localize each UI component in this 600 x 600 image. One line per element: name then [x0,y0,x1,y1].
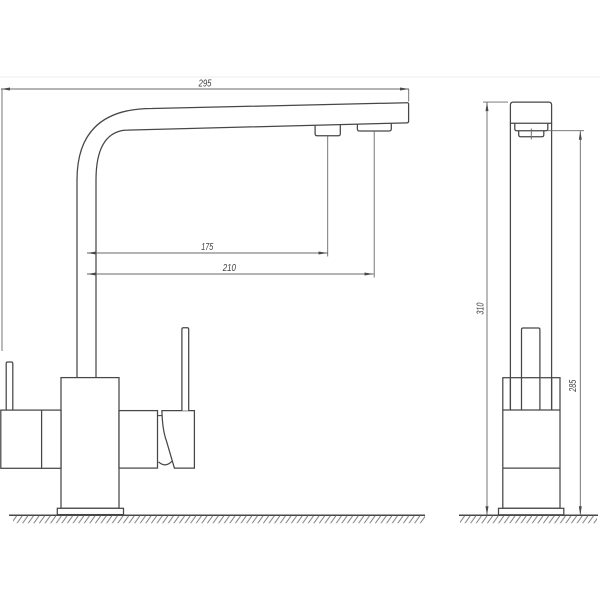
svg-text:310: 310 [476,302,487,314]
svg-text:175: 175 [201,242,213,253]
svg-text:210: 210 [222,263,236,274]
svg-text:295: 295 [198,78,212,89]
svg-text:285: 285 [568,379,579,392]
